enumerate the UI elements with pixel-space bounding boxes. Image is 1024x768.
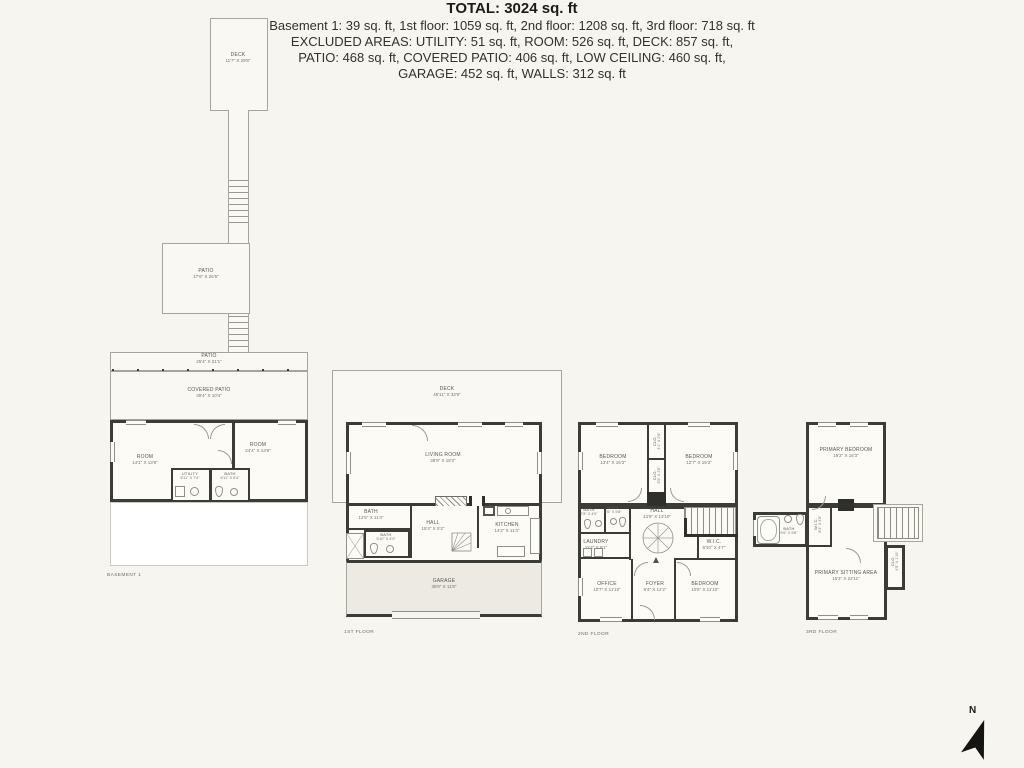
floor-label-3rd: 3RD FLOOR: [806, 630, 837, 635]
sink-icon: [595, 520, 602, 527]
window: [850, 422, 868, 427]
basement-low-ceiling-area: [110, 502, 308, 566]
summary-line-excluded: EXCLUDED AREAS: UTILITY: 51 sq. ft, ROOM…: [0, 34, 1024, 50]
wall: [631, 559, 633, 620]
window: [110, 442, 115, 462]
stove-icon: [497, 546, 525, 557]
floor-label-1st: 1ST FLOOR: [344, 630, 374, 635]
area-summary: TOTAL: 3024 sq. ft Basement 1: 39 sq. ft…: [0, 0, 1024, 82]
wall: [232, 423, 235, 469]
window: [850, 615, 868, 620]
wall: [477, 506, 479, 548]
wall: [830, 508, 832, 547]
walkway-stairs-upper: [229, 180, 248, 226]
patio-upper-outline: [162, 243, 250, 314]
up-arrow-icon: [653, 557, 659, 563]
counter: [497, 506, 529, 516]
summary-line-garage: GARAGE: 452 sq. ft, WALLS: 312 sq. ft: [0, 66, 1024, 82]
winder-stairs-icon: [450, 531, 473, 553]
window: [600, 617, 622, 622]
wall: [697, 536, 699, 559]
window: [278, 420, 296, 425]
window: [578, 452, 583, 470]
compass-label: N: [969, 705, 976, 716]
window: [126, 420, 146, 425]
living-room: [346, 422, 542, 506]
sink-icon: [230, 488, 238, 496]
walkway-stairs-lower: [229, 316, 248, 350]
wall: [684, 534, 738, 537]
window: [458, 422, 482, 427]
floor-label-basement: BASEMENT 1: [107, 573, 141, 578]
washer-icon: [583, 548, 592, 557]
wall: [410, 506, 412, 558]
north-arrow-icon: [956, 717, 1002, 763]
counter: [530, 518, 540, 554]
wall: [808, 545, 832, 547]
sink-icon: [784, 515, 792, 523]
closet-icon: [346, 533, 364, 559]
basement-bath: [210, 468, 250, 502]
window: [818, 422, 836, 427]
dryer-icon: [594, 548, 603, 557]
wall: [604, 509, 606, 533]
spiral-staircase-icon: [641, 521, 675, 555]
wall: [629, 509, 631, 560]
window: [505, 422, 523, 427]
fridge-icon: [483, 506, 495, 516]
window: [537, 452, 542, 474]
summary-line-patio: PATIO: 468 sq. ft, COVERED PATIO: 406 sq…: [0, 50, 1024, 66]
wall: [581, 532, 629, 534]
window: [818, 615, 838, 620]
sink-icon: [610, 518, 617, 525]
window: [733, 452, 738, 470]
floor3-top-block: [806, 422, 886, 506]
chimney: [647, 492, 666, 506]
summary-line-floors: Basement 1: 39 sq. ft, 1st floor: 1059 s…: [0, 18, 1024, 34]
wall: [674, 558, 736, 560]
floor-label-2nd: 2ND FLOOR: [578, 632, 609, 637]
covered-patio-outline: [110, 371, 308, 420]
window: [596, 422, 618, 427]
floor3-closet-ext: [885, 545, 905, 590]
sink-icon: [190, 487, 199, 496]
chimney: [838, 499, 854, 511]
sink-icon: [386, 545, 394, 553]
stairs-floor2: [684, 507, 736, 535]
window: [688, 422, 710, 427]
window: [362, 422, 386, 427]
stairs-floor3: [877, 507, 919, 539]
water-heater-icon: [175, 486, 185, 497]
wall: [684, 518, 687, 537]
summary-total: TOTAL: 3024 sq. ft: [0, 0, 1024, 18]
wall: [674, 558, 676, 620]
wall: [649, 458, 664, 460]
window: [346, 452, 351, 474]
window: [700, 617, 720, 622]
sink-icon: [505, 508, 511, 514]
bathtub-basin: [760, 519, 777, 541]
window: [578, 578, 583, 596]
floorplan-canvas: DECK 11'7" X 29'8" PATIO 17'6" X 26'5" P…: [0, 0, 1024, 768]
wall: [581, 557, 629, 559]
garage: [346, 560, 542, 617]
garage-door: [392, 611, 480, 619]
